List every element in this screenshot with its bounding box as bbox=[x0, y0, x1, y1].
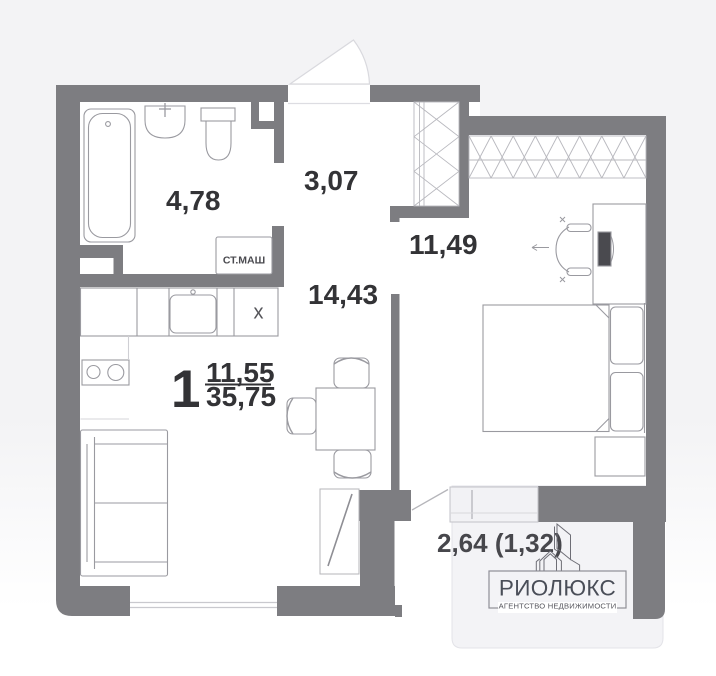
svg-text:2,64 (1,32): 2,64 (1,32) bbox=[437, 528, 563, 558]
svg-text:1: 1 bbox=[171, 360, 200, 419]
svg-text:14,43: 14,43 bbox=[308, 279, 378, 310]
svg-text:СТ.МАШ: СТ.МАШ bbox=[223, 255, 265, 267]
svg-text:4,78: 4,78 bbox=[166, 185, 221, 216]
svg-text:3,07: 3,07 bbox=[304, 165, 359, 196]
svg-text:РИОЛЮКС: РИОЛЮКС bbox=[499, 576, 616, 601]
svg-text:АГЕНТСТВО НЕДВИЖИМОСТИ: АГЕНТСТВО НЕДВИЖИМОСТИ bbox=[499, 602, 617, 611]
svg-text:35,75: 35,75 bbox=[206, 381, 276, 412]
svg-text:х: х bbox=[254, 302, 264, 324]
svg-text:11,49: 11,49 bbox=[409, 229, 478, 260]
